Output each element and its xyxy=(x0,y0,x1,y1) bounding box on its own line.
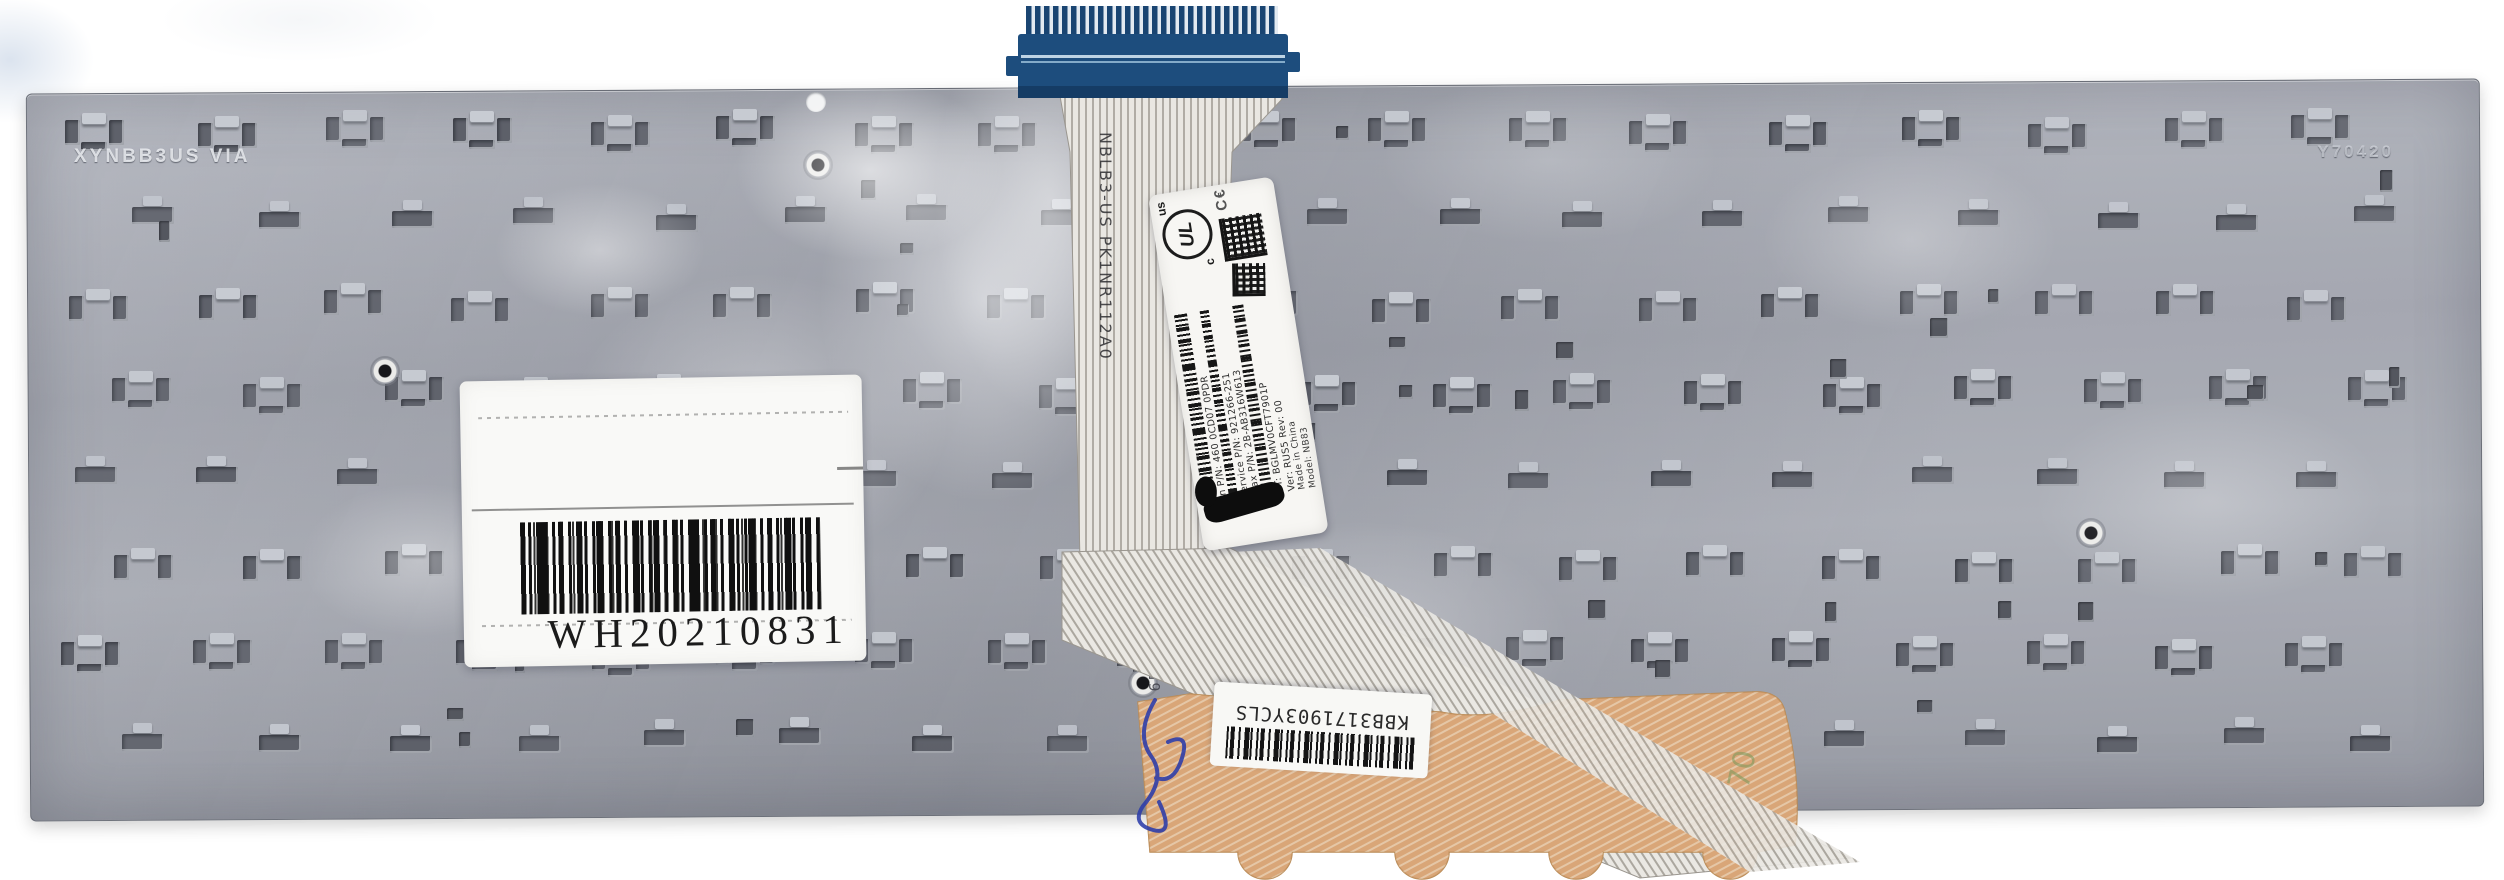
flipped-serial-label: KBB3171903YCLS xyxy=(1210,681,1433,778)
plate-hole xyxy=(159,221,170,242)
key-mount-cluster xyxy=(2033,283,2107,327)
key-mount-cluster xyxy=(1902,456,1976,500)
plate-hole xyxy=(1988,289,1999,304)
key-mount-cluster xyxy=(323,632,397,676)
key-mount-cluster xyxy=(112,723,186,767)
key-mount-cluster xyxy=(896,194,970,238)
key-mount-cluster xyxy=(241,548,315,592)
key-mount-cluster xyxy=(112,547,186,591)
key-mount-cluster xyxy=(2342,545,2416,589)
key-mount-cluster xyxy=(2340,725,2414,769)
flex-cable-marking: NBLB3-US PK1NR112A0 xyxy=(1096,132,1115,361)
key-mount-cluster xyxy=(65,456,139,500)
plate-hole xyxy=(2078,602,2094,622)
key-mount-cluster xyxy=(191,632,265,676)
sticker-rule xyxy=(472,503,854,512)
key-mount-cluster xyxy=(249,724,323,768)
key-mount-cluster xyxy=(110,370,184,414)
key-mount-cluster xyxy=(2076,551,2150,595)
screw-hole xyxy=(372,358,398,384)
key-mount-cluster xyxy=(380,725,454,769)
key-mount-cluster xyxy=(646,204,720,248)
key-mount-cluster xyxy=(589,286,663,330)
plate-hole xyxy=(2389,367,2399,388)
plate-hole xyxy=(459,732,471,748)
key-mount-cluster xyxy=(503,197,577,241)
key-mount-cluster xyxy=(769,717,843,761)
key-mount-cluster xyxy=(2027,458,2101,502)
sticker-barcode xyxy=(520,517,822,614)
plate-hole xyxy=(736,719,754,738)
ul-c-mark: c xyxy=(1203,257,1218,266)
key-mount-cluster xyxy=(711,286,785,330)
ul-certification-logo: c UL us xyxy=(1154,202,1218,266)
alignment-hole xyxy=(806,92,826,112)
key-mount-cluster xyxy=(67,288,141,332)
key-mount-cluster xyxy=(1952,368,2026,412)
plate-hole xyxy=(2380,170,2393,191)
key-mount-cluster xyxy=(241,376,315,420)
key-mount-cluster xyxy=(2206,204,2280,248)
qr-code-small xyxy=(1232,263,1266,297)
key-mount-cluster xyxy=(1894,635,1968,679)
photo-keyboard-backplate: { "scene": { "description": "Rear view o… xyxy=(0,0,2504,880)
key-mount-cluster xyxy=(902,725,976,769)
key-mount-cluster xyxy=(854,281,928,325)
key-mount-cluster xyxy=(2283,635,2357,679)
plate-hole xyxy=(1917,700,1934,714)
key-mount-cluster xyxy=(59,634,133,678)
key-mount-cluster xyxy=(1953,551,2027,595)
key-mount-cluster xyxy=(775,196,849,240)
key-mount-cluster xyxy=(2346,369,2420,413)
plate-hole xyxy=(2315,552,2328,566)
key-mount-cluster xyxy=(714,108,788,152)
plate-hole xyxy=(861,180,876,199)
plate-hole xyxy=(447,708,464,722)
key-mount-cluster xyxy=(853,115,927,159)
key-mount-cluster xyxy=(2219,543,2293,587)
key-mount-cluster xyxy=(249,201,323,245)
etched-text-top-left: XYNBB3US VIA xyxy=(74,146,250,168)
key-mount-cluster xyxy=(2344,195,2418,239)
key-mount-cluster xyxy=(186,456,260,500)
key-mount-cluster xyxy=(2082,371,2156,415)
plate-hole xyxy=(897,304,909,317)
key-mount-cluster xyxy=(589,114,663,158)
key-mount-cluster xyxy=(324,109,398,153)
screw-hole xyxy=(805,152,831,178)
key-mount-cluster xyxy=(901,371,975,415)
key-mount-cluster xyxy=(382,200,456,244)
sticker-dotted-line xyxy=(478,411,848,419)
key-mount-cluster xyxy=(904,546,978,590)
warranty-sticker: WH20210831 xyxy=(460,375,867,668)
key-mount-cluster xyxy=(2163,110,2237,154)
key-mount-cluster xyxy=(2088,202,2162,246)
ribbon-cable-assembly: 70 xyxy=(990,0,1890,880)
qr-code-large xyxy=(1219,213,1268,262)
plate-hole xyxy=(1998,601,2012,619)
sticker-code: WH20210831 xyxy=(547,605,850,658)
key-mount-cluster xyxy=(451,110,525,154)
key-mount-cluster xyxy=(2154,283,2228,327)
key-mount-cluster xyxy=(1955,719,2029,763)
key-mount-cluster xyxy=(2285,289,2359,333)
key-mount-cluster xyxy=(2207,368,2281,412)
plate-hole xyxy=(1930,318,1948,339)
key-mount-cluster xyxy=(2154,461,2228,505)
blue-ribbon-connector xyxy=(1006,6,1300,98)
key-mount-cluster xyxy=(509,725,583,769)
flipped-label-barcode xyxy=(1225,726,1414,769)
key-mount-cluster xyxy=(327,458,401,502)
key-mount-cluster xyxy=(2286,461,2360,505)
key-mount-cluster xyxy=(383,543,457,587)
key-mount-cluster xyxy=(2025,633,2099,677)
label-barcodes: an P/N: 460 0CD07 0PDR Service P/N: 9212… xyxy=(1174,298,1317,505)
ul-us-mark: us xyxy=(1153,201,1169,217)
key-mount-cluster xyxy=(1900,109,1974,153)
key-mount-cluster xyxy=(449,290,523,334)
key-mount-cluster xyxy=(1948,199,2022,243)
plate-hole xyxy=(2247,385,2264,401)
key-mount-cluster xyxy=(197,287,271,331)
screw-hole xyxy=(2078,520,2104,546)
key-mount-cluster xyxy=(322,282,396,326)
sticker-tick xyxy=(837,466,863,469)
plate-hole xyxy=(900,243,914,256)
key-mount-cluster xyxy=(634,719,708,763)
ce-mark: C€ xyxy=(1211,186,1231,212)
key-mount-cluster xyxy=(2087,726,2161,770)
etched-text-top-right: Y70420 xyxy=(2317,142,2394,162)
key-mount-cluster xyxy=(2153,638,2227,682)
key-mount-cluster xyxy=(2214,717,2288,761)
key-mount-cluster xyxy=(2026,116,2100,160)
